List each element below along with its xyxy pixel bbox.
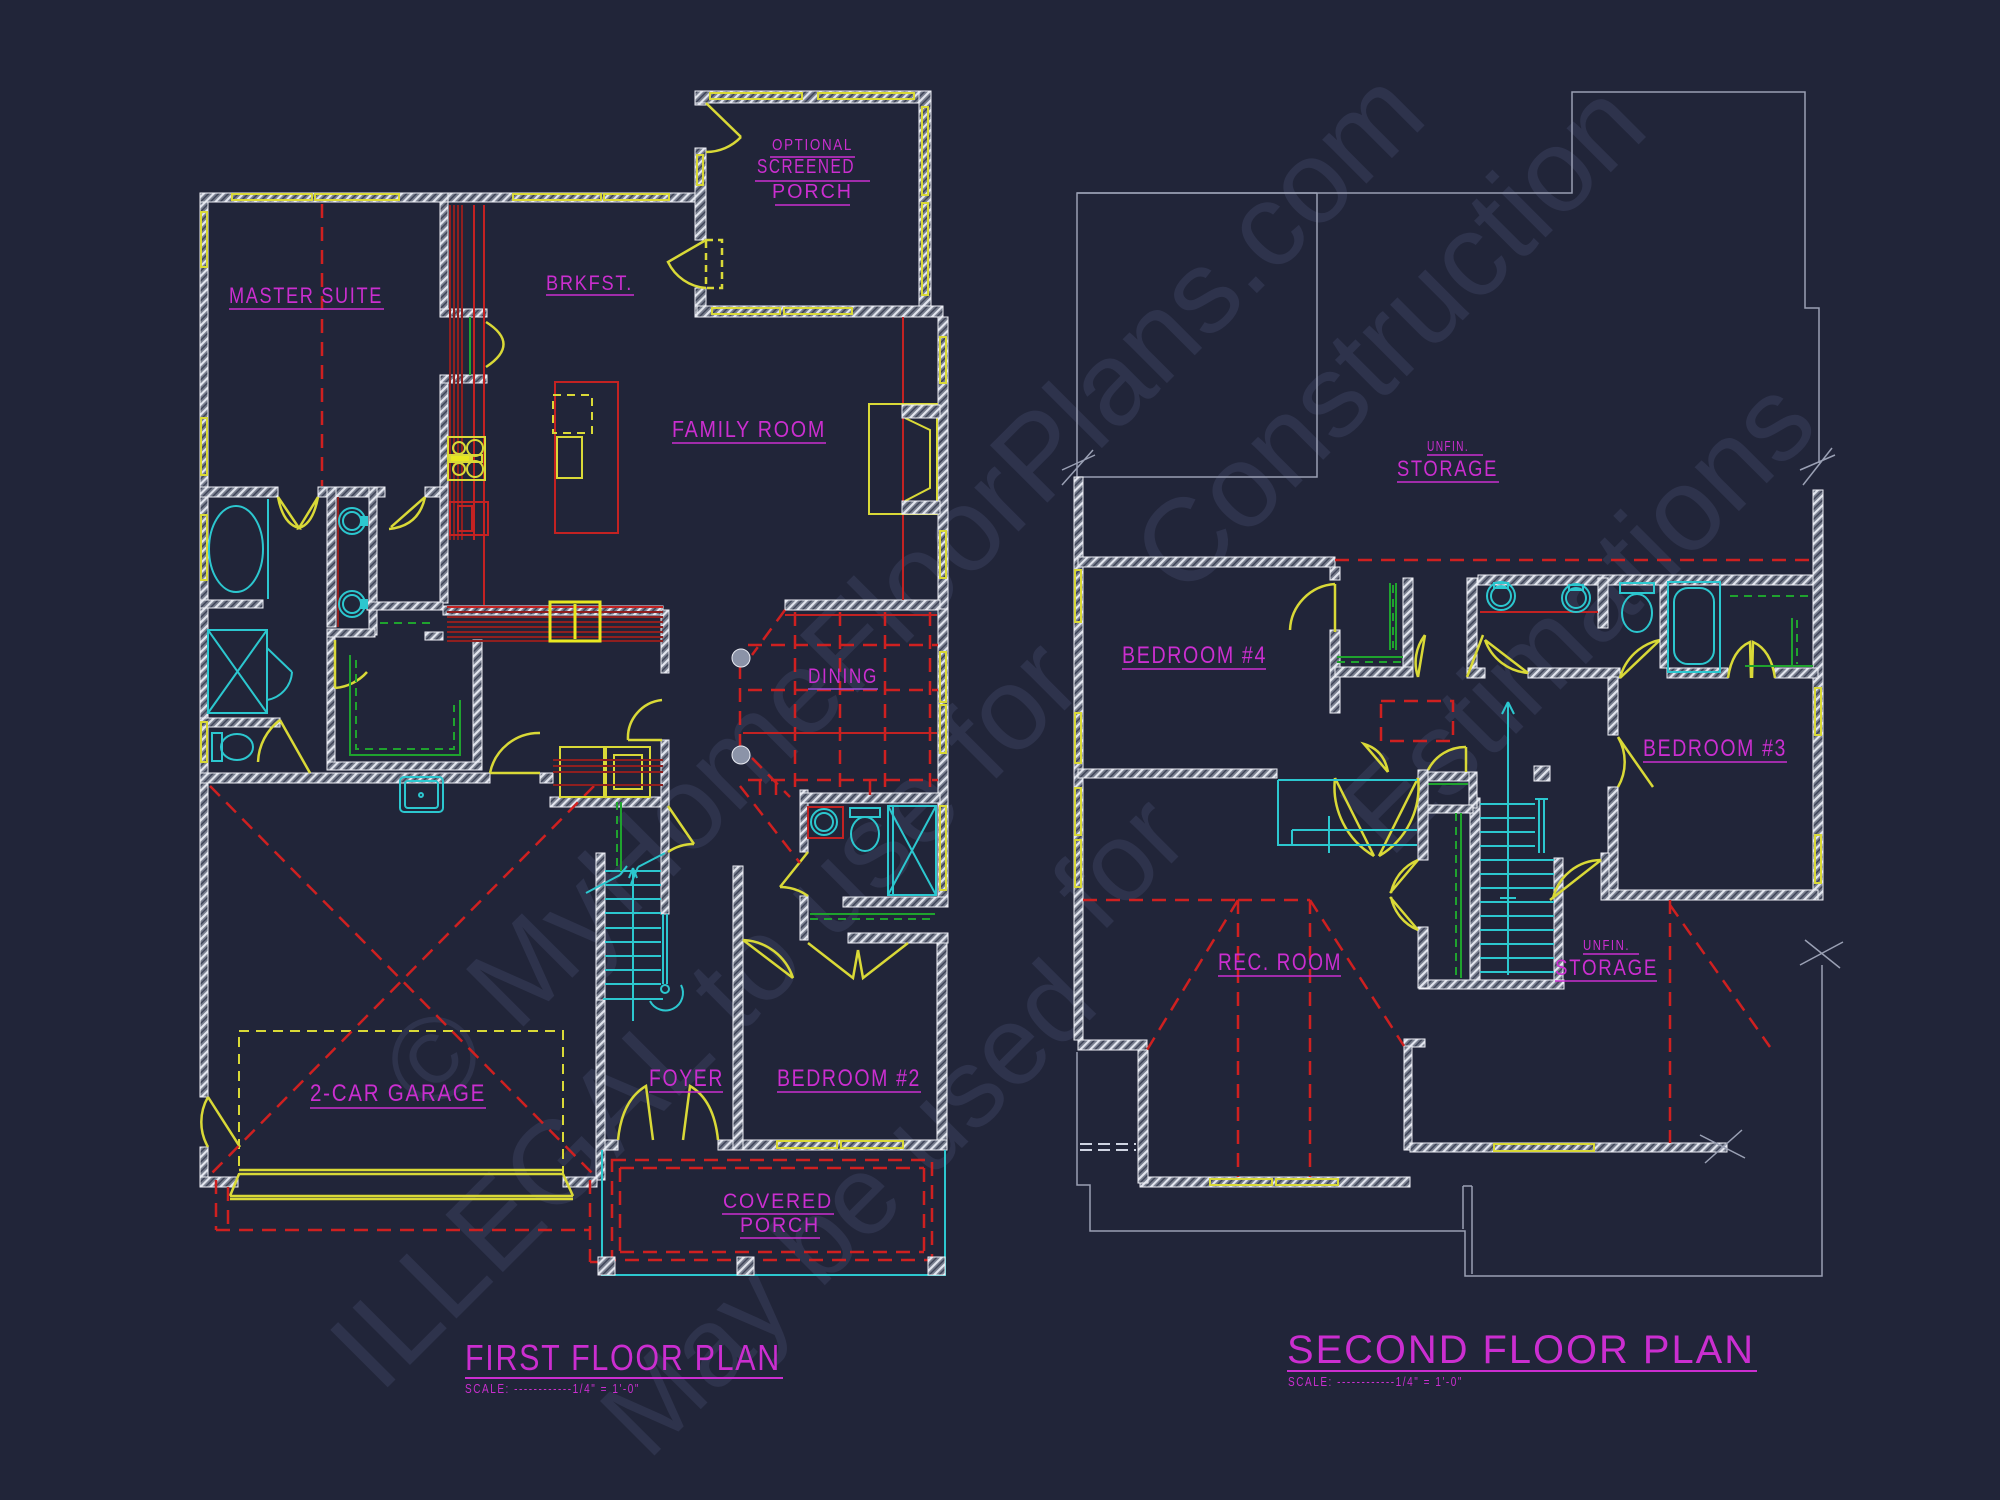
svg-text:FIRST FLOOR PLAN: FIRST FLOOR PLAN — [465, 1337, 781, 1378]
svg-text:BEDROOM #4: BEDROOM #4 — [1122, 642, 1267, 669]
svg-text:UNFIN.: UNFIN. — [1427, 438, 1469, 455]
svg-text:UNFIN.: UNFIN. — [1583, 937, 1630, 954]
svg-text:FOYER: FOYER — [649, 1065, 724, 1092]
svg-text:COVERED: COVERED — [723, 1190, 833, 1213]
svg-text:BEDROOM #2: BEDROOM #2 — [777, 1065, 921, 1092]
svg-text:SECOND FLOOR PLAN: SECOND FLOOR PLAN — [1287, 1328, 1755, 1372]
svg-text:REC. ROOM: REC. ROOM — [1218, 949, 1342, 976]
svg-text:PORCH: PORCH — [740, 1214, 820, 1237]
svg-text:2-CAR GARAGE: 2-CAR GARAGE — [310, 1080, 486, 1107]
svg-text:SCALE: ------------1/4" = 1'-0: SCALE: ------------1/4" = 1'-0" — [465, 1381, 640, 1396]
svg-text:DINING: DINING — [808, 665, 878, 688]
svg-text:BRKFST.: BRKFST. — [546, 272, 633, 295]
svg-text:STORAGE: STORAGE — [1555, 955, 1658, 980]
svg-text:PORCH: PORCH — [772, 181, 853, 203]
svg-text:SCREENED: SCREENED — [757, 156, 855, 178]
svg-text:FAMILY ROOM: FAMILY ROOM — [672, 416, 826, 442]
svg-text:BEDROOM #3: BEDROOM #3 — [1643, 735, 1787, 762]
svg-text:SCALE: ------------1/4" = 1'-0: SCALE: ------------1/4" = 1'-0" — [1288, 1374, 1463, 1389]
svg-text:MASTER SUITE: MASTER SUITE — [229, 283, 383, 308]
svg-text:STORAGE: STORAGE — [1397, 456, 1498, 481]
svg-text:OPTIONAL: OPTIONAL — [772, 137, 853, 154]
